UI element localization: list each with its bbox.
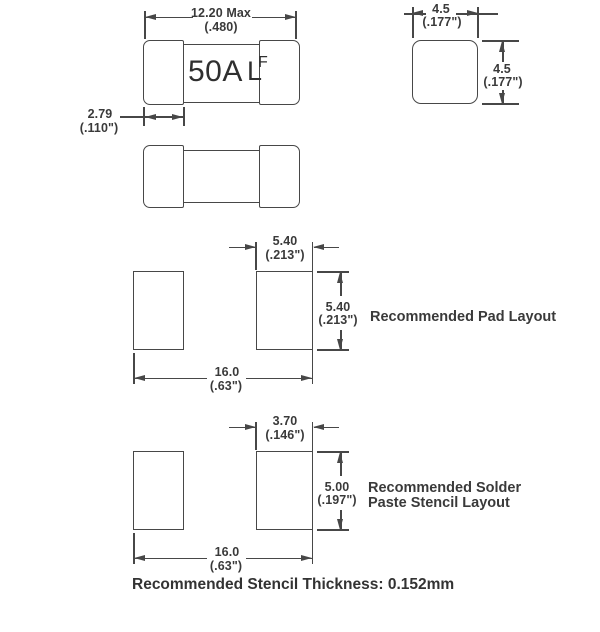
extension-line: [317, 271, 349, 273]
arrowhead-up: [337, 272, 343, 283]
dim-label-pad-span-in: (.63"): [181, 379, 271, 393]
arrowhead-down: [499, 93, 505, 104]
pad-left: [133, 271, 184, 350]
dim-label-fuse-length-in: (.480): [176, 20, 266, 34]
dim-label-terminal-mm: 2.79: [55, 107, 145, 121]
dim-label-endview-height-mm: 4.5: [457, 62, 547, 76]
dim-label-stencil-span-in: (.63"): [181, 559, 271, 573]
arrowhead-right: [301, 375, 312, 381]
stencil-layout-title-line1: Recommended Solder: [368, 481, 521, 496]
extension-line: [317, 349, 349, 351]
arrowhead-right: [285, 14, 296, 20]
stencil-layout-title: Recommended Solder Paste Stencil Layout: [368, 481, 521, 511]
arrowhead-down: [337, 339, 343, 350]
extension-line: [317, 451, 349, 453]
dim-label-stencil-width-in: (.146"): [240, 428, 330, 442]
extension-line: [143, 107, 145, 126]
dim-label-pad-span-mm: 16.0: [182, 365, 272, 379]
stencil-thickness-note: Recommended Stencil Thickness: 0.152mm: [132, 576, 454, 594]
fuse-dimension-drawing: 12.20 Max (.480) 50A L F 2.79 (.110") 4.…: [0, 0, 600, 632]
arrowhead-down: [337, 519, 343, 530]
stencil-layout-title-line2: Paste Stencil Layout: [368, 496, 521, 511]
arrowhead-right: [301, 555, 312, 561]
arrowhead-left: [134, 555, 145, 561]
fuse-body-side: [183, 150, 260, 203]
dim-label-stencil-span-mm: 16.0: [182, 545, 272, 559]
fuse-end-cap-right-side: [259, 145, 300, 208]
fuse-end-cap-left: [143, 40, 184, 105]
littelfuse-logo: L F: [247, 56, 267, 86]
dim-label-fuse-length-mm: 12.20 Max: [176, 6, 266, 20]
arrowhead-left: [134, 375, 145, 381]
dim-label-pad-width-in: (.213"): [240, 248, 330, 262]
arrowhead-left: [145, 14, 156, 20]
dim-label-endview-width-mm: 4.5: [396, 2, 486, 16]
arrowhead-up: [337, 452, 343, 463]
arrowhead-left: [145, 114, 156, 120]
fuse-rating-marking: 50A: [188, 56, 243, 88]
dim-label-endview-width-in: (.177"): [397, 15, 487, 29]
extension-line: [295, 11, 297, 39]
logo-letter-f: F: [258, 55, 268, 71]
pad-layout-title: Recommended Pad Layout: [370, 310, 556, 325]
arrowhead-right: [172, 114, 183, 120]
dim-label-terminal-in: (.110"): [54, 121, 144, 135]
extension-line: [144, 11, 146, 39]
stencil-opening-left: [133, 451, 184, 530]
dim-label-pad-width-mm: 5.40: [240, 234, 330, 248]
extension-line: [183, 107, 185, 126]
dim-label-stencil-width-mm: 3.70: [240, 414, 330, 428]
dim-label-endview-height-in: (.177"): [458, 75, 548, 89]
fuse-end-cap-left-side: [143, 145, 184, 208]
extension-line: [317, 529, 349, 531]
arrowhead-up: [499, 41, 505, 52]
